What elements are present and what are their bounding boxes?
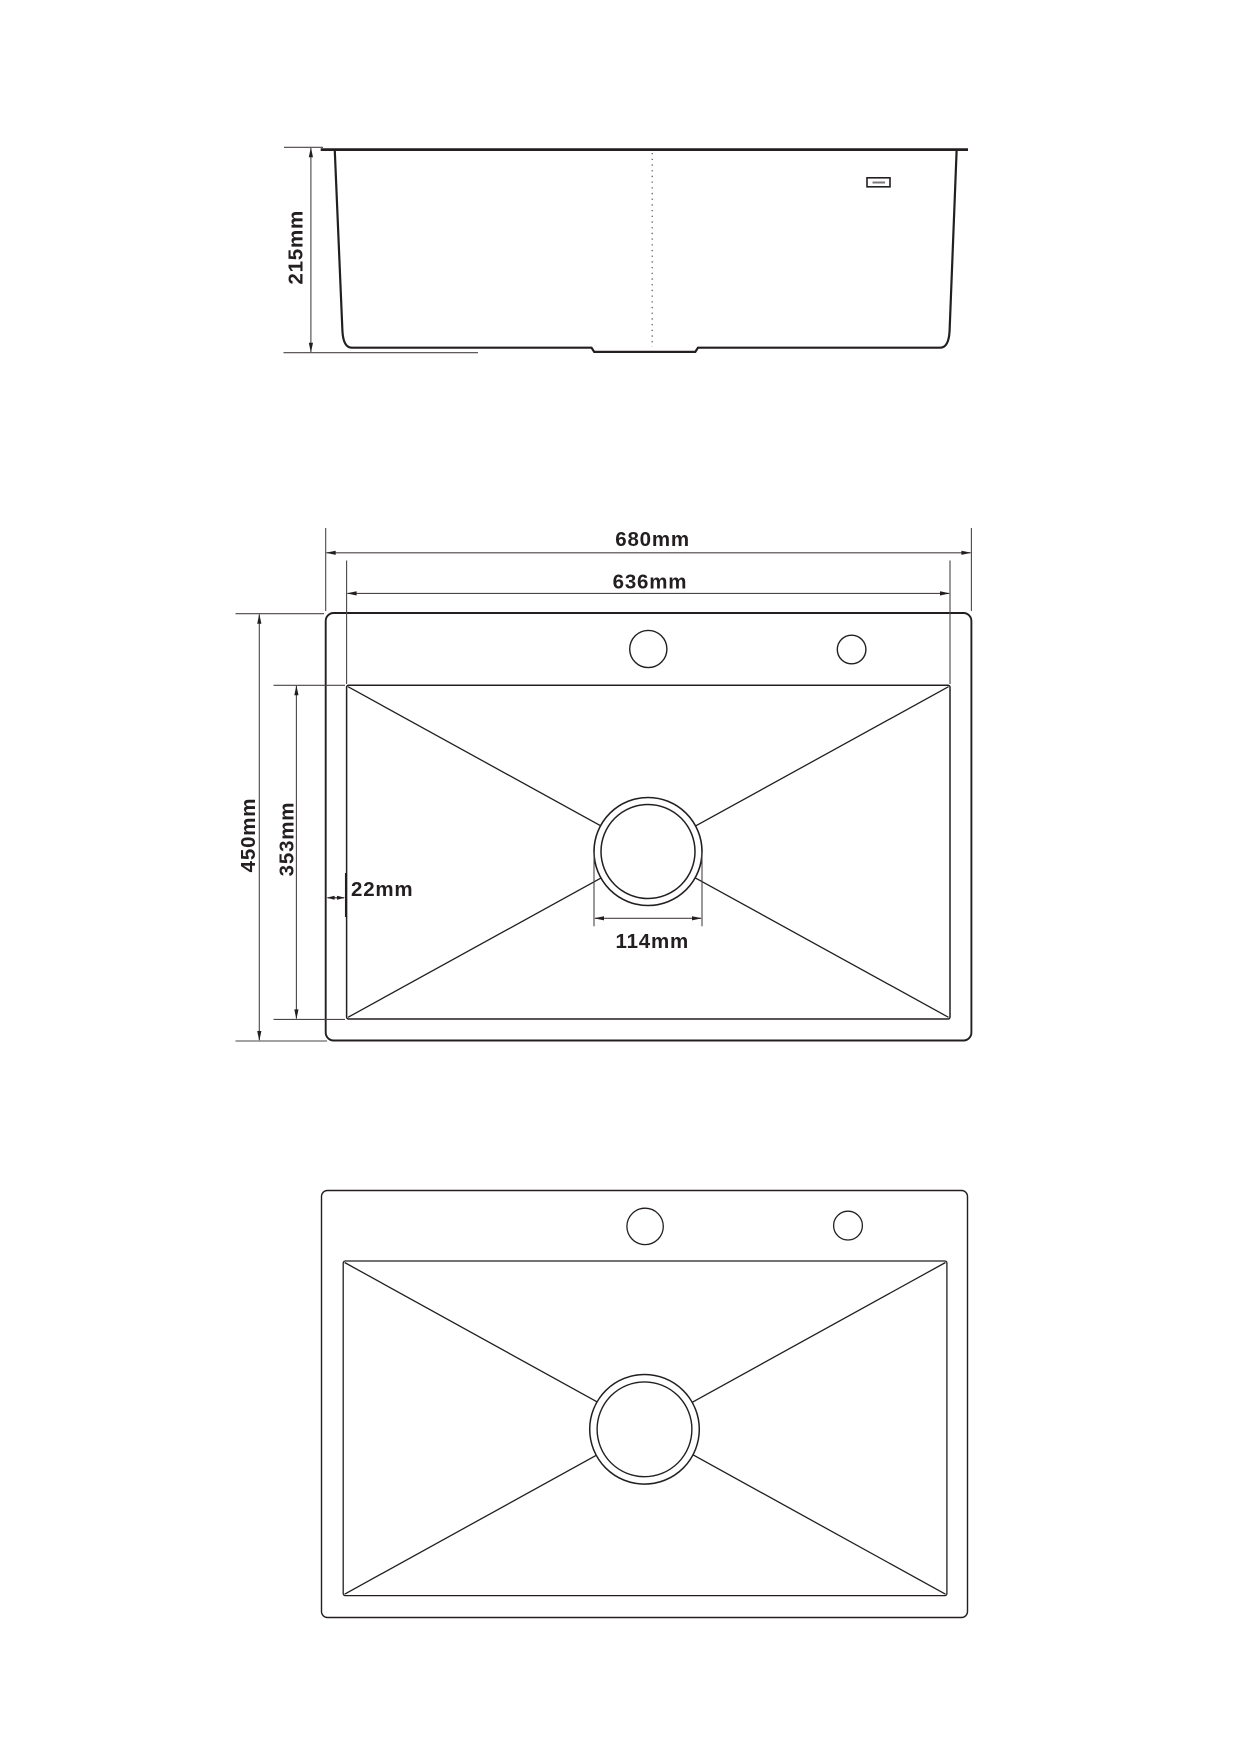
svg-text:215mm: 215mm — [285, 210, 308, 285]
svg-text:353mm: 353mm — [276, 802, 299, 877]
svg-text:22mm: 22mm — [351, 878, 413, 901]
svg-text:680mm: 680mm — [615, 528, 690, 551]
svg-text:450mm: 450mm — [237, 798, 260, 873]
svg-text:636mm: 636mm — [613, 571, 688, 594]
svg-text:114mm: 114mm — [616, 930, 690, 953]
